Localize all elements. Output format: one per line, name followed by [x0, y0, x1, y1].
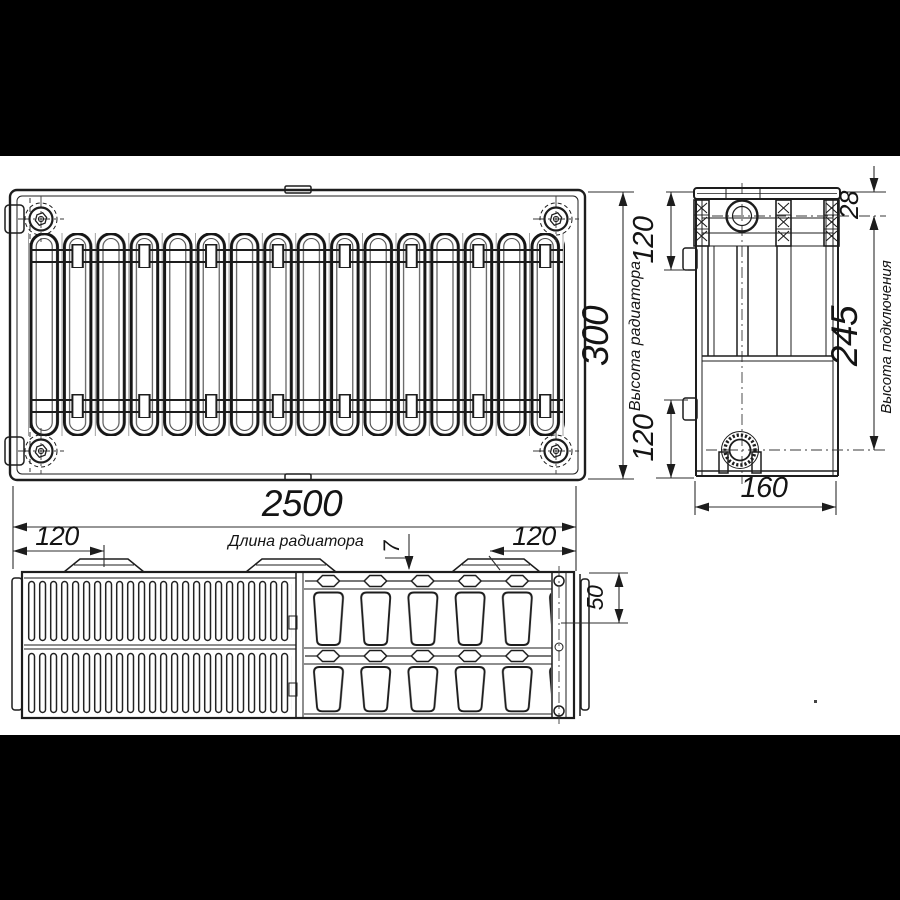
convector-section	[304, 573, 552, 714]
connection-height-caption: Высота подключения	[878, 260, 895, 413]
fin-rail-top	[28, 244, 565, 268]
length-value: 2500	[261, 483, 343, 524]
radiator-technical-drawing: 2500 Длина радиатора 300 Высота радиатор…	[0, 0, 900, 900]
height-value: 300	[575, 305, 616, 366]
panel-depth-value: 50	[582, 585, 608, 610]
side-top-offset-value: 120	[628, 216, 660, 263]
length-caption: Длина радиатора	[226, 533, 364, 550]
letterbox-bottom	[0, 735, 900, 900]
bracket-left-offset-value: 120	[35, 521, 79, 551]
connection-height-value: 245	[824, 305, 865, 367]
fin-rail-bottom	[28, 394, 565, 418]
height-caption: Высота радиатора	[627, 261, 644, 411]
speck	[814, 700, 817, 703]
letterbox-top	[0, 0, 900, 156]
bracket-gap-value: 7	[379, 540, 404, 553]
depth-value: 160	[741, 472, 788, 504]
side-bottom-offset-value: 120	[628, 414, 660, 461]
edge-to-axis-value: 28	[834, 190, 864, 220]
bracket-right-offset-value: 120	[512, 521, 556, 551]
